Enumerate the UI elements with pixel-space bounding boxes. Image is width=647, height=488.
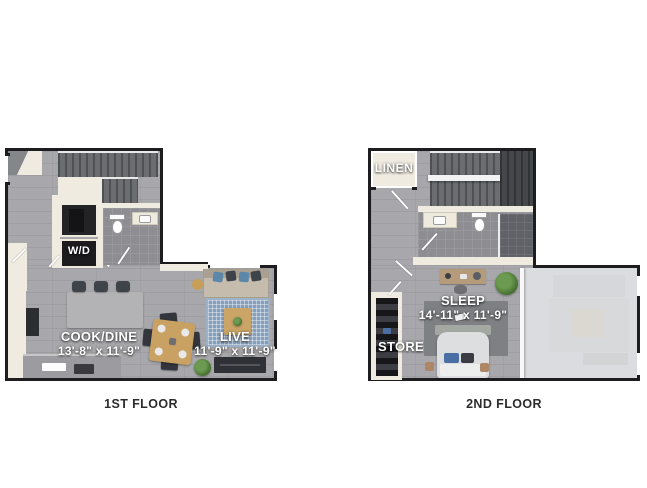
f1-coffee-table-plant [233,317,242,326]
f1-kitchen-island [67,292,143,328]
f1-cook-dine-dims: 13'-8" x 11'-9" [33,345,165,359]
f1-window-mullion [5,182,10,185]
f1-window-left [5,156,8,182]
f2-window-right-upper [637,276,640,296]
f1-sofa-pillow [212,271,223,282]
f1-sink [139,215,151,223]
f2-foot-stool [480,363,489,372]
first-floor-caption: 1ST FLOOR [71,397,211,411]
f1-live-label: LIVE 11'-9" x 11'-9" [183,330,287,359]
f1-tv-console [214,357,266,373]
f1-window-behind-sofa [210,265,260,268]
f1-live-name: LIVE [220,329,250,344]
f2-foot-stool [425,362,434,371]
f1-kitchen-sink [41,362,67,372]
f2-store-closet [376,298,398,376]
f2-sleep-name: SLEEP [441,293,485,308]
f1-washer-dryer-label: W/D [60,245,98,258]
f1-floor-plant [194,359,211,376]
f1-stairs-upper-flight [58,151,158,177]
f2-desk-item [445,273,451,279]
f2-desk [440,269,486,284]
f1-island-stool [94,281,108,292]
f2-linen-wall-tick [412,187,417,190]
f1-stair-landing [58,177,102,195]
f1-pantry-closet [60,203,98,237]
second-floor-caption: 2ND FLOOR [434,397,574,411]
f2-store-item [383,328,391,334]
f1-sofa-pillow [250,270,261,281]
f1-sofa-pillow [225,270,236,281]
f2-bed-pillow [461,353,474,363]
f1-living-top-wall-jog [160,262,208,271]
f2-desk-item [473,272,481,280]
f1-side-table [192,279,203,290]
f1-cooktop [74,364,94,374]
f1-centerpiece [169,338,177,346]
floorplan-second-floor: LINEN STORE S [368,148,640,381]
f1-cook-dine-label: COOK/DINE 13'-8" x 11'-9" [33,330,165,359]
f2-bed-pillow [444,353,459,363]
f1-corner-slope [8,151,42,175]
f1-cook-dine-name: COOK/DINE [61,329,137,344]
f1-pantry-unit [69,209,84,232]
f2-open-below-haze [523,268,637,378]
f2-stairwell-void [500,151,533,206]
floorplan-page: { "colors": { "page_bg": "#ffffff", "wal… [0,0,647,488]
f1-island-stool [116,281,130,292]
f2-sleep-label: SLEEP 14'-11" x 11'-9" [403,294,523,323]
f2-stair-railing [428,175,500,181]
f1-window-right-upper [274,294,277,320]
f2-plant [495,272,518,295]
f1-window-mullion [5,153,10,156]
f2-bedroom-wall [413,257,533,265]
f2-toilet-bowl [474,218,485,232]
f2-sink [433,216,446,225]
f1-tv-console-detail [220,364,260,366]
f2-linen-label: LINEN [371,162,417,176]
f1-bathroom-top-wall [103,203,160,208]
f1-closet-top-wall [58,195,102,203]
f2-linen-wall-tick [371,187,376,190]
floorplan-first-floor: W/D [5,148,277,381]
f1-live-dims: 11'-9" x 11'-9" [183,345,287,359]
f1-island-stool [72,281,86,292]
f2-sleep-dims: 14'-11" x 11'-9" [403,309,523,323]
f1-sofa-pillow [239,272,250,283]
f1-toilet-bowl [112,220,123,234]
f2-loft-railing [520,268,524,378]
f2-desk-item [460,274,467,279]
f2-window-right-lower [637,353,640,375]
